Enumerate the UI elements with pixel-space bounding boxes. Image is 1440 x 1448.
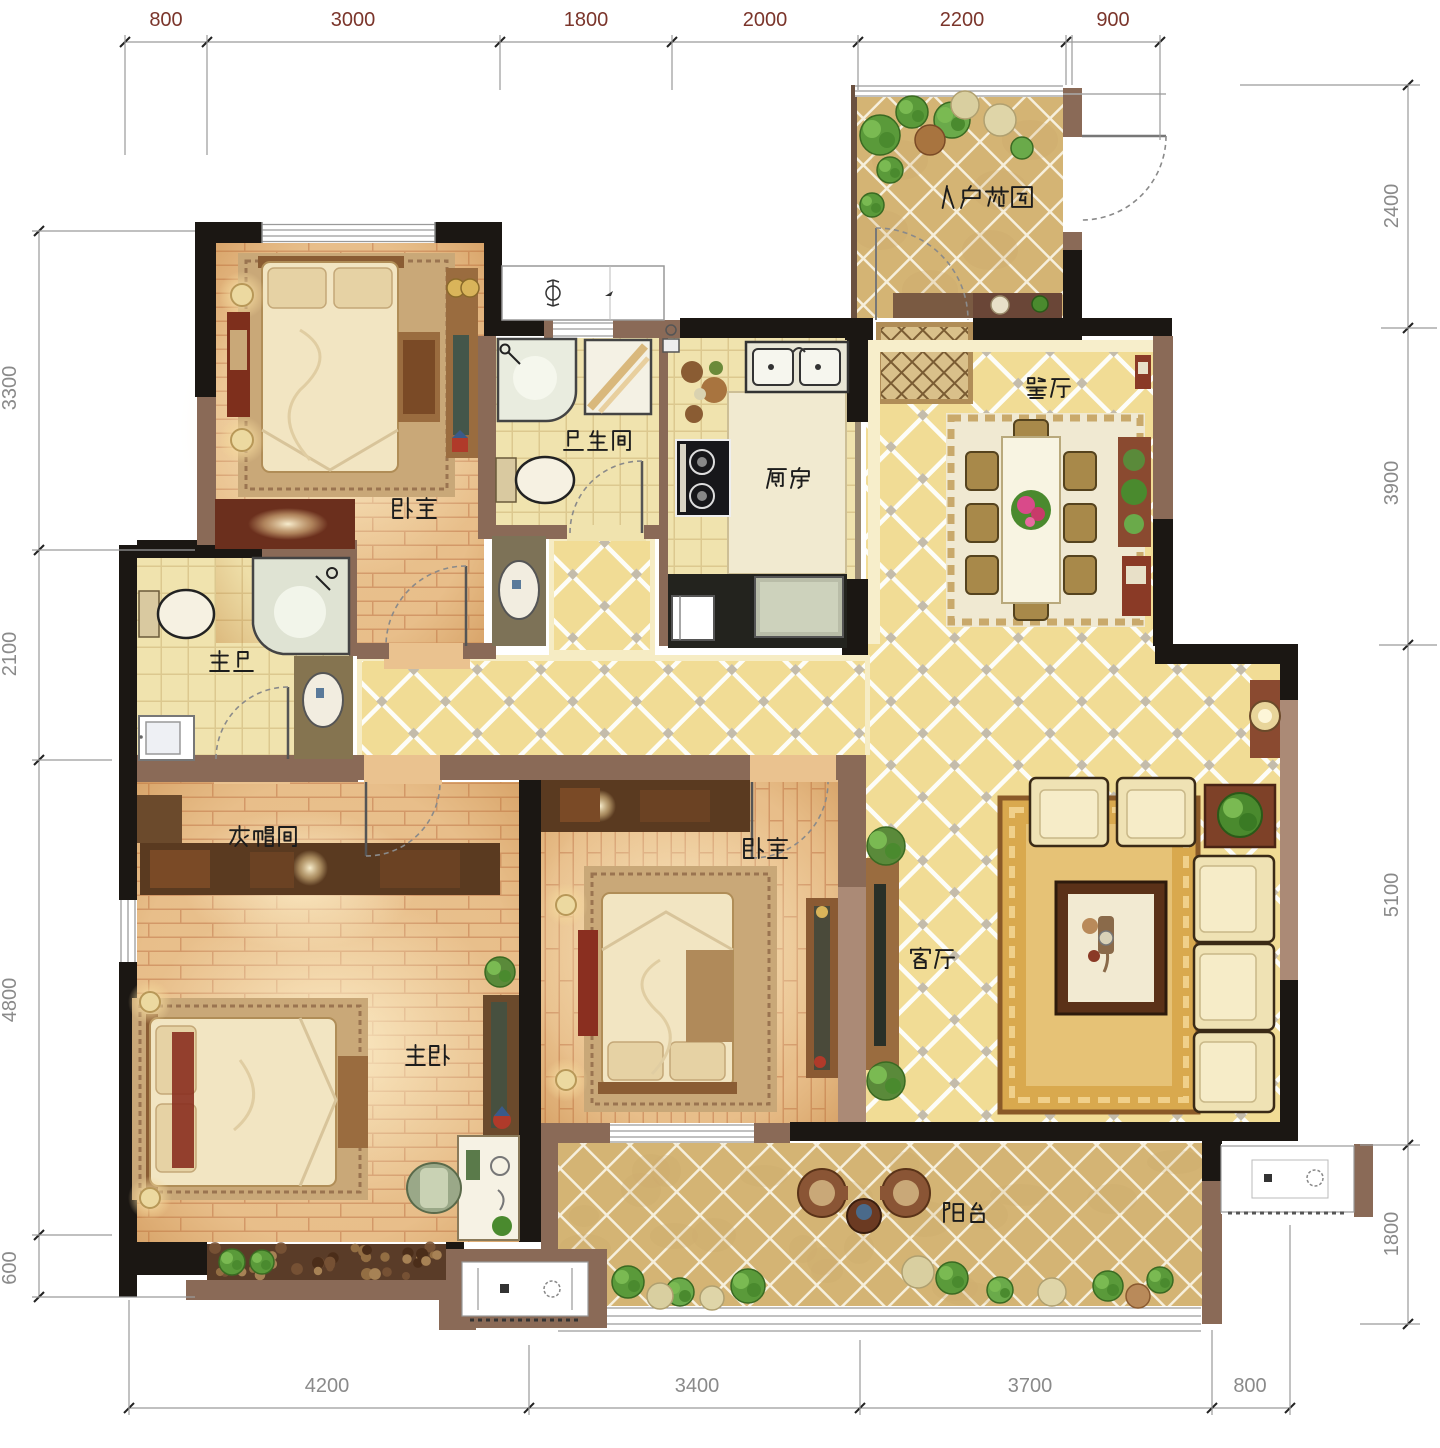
svg-text:4200: 4200 (305, 1375, 350, 1397)
svg-text:2400: 2400 (1381, 184, 1403, 229)
svg-text:900: 900 (1096, 9, 1129, 31)
svg-text:1800: 1800 (564, 9, 609, 31)
svg-text:4800: 4800 (0, 978, 21, 1023)
svg-text:800: 800 (149, 9, 182, 31)
svg-text:5100: 5100 (1381, 873, 1403, 918)
svg-text:1800: 1800 (1381, 1212, 1403, 1257)
svg-text:2100: 2100 (0, 632, 21, 677)
svg-text:800: 800 (1233, 1375, 1266, 1397)
svg-text:2200: 2200 (940, 9, 985, 31)
svg-text:3900: 3900 (1381, 461, 1403, 506)
svg-text:3700: 3700 (1008, 1375, 1053, 1397)
svg-text:3300: 3300 (0, 366, 21, 411)
svg-text:600: 600 (0, 1251, 21, 1284)
svg-text:3000: 3000 (331, 9, 376, 31)
svg-text:2000: 2000 (743, 9, 788, 31)
svg-text:3400: 3400 (675, 1375, 720, 1397)
